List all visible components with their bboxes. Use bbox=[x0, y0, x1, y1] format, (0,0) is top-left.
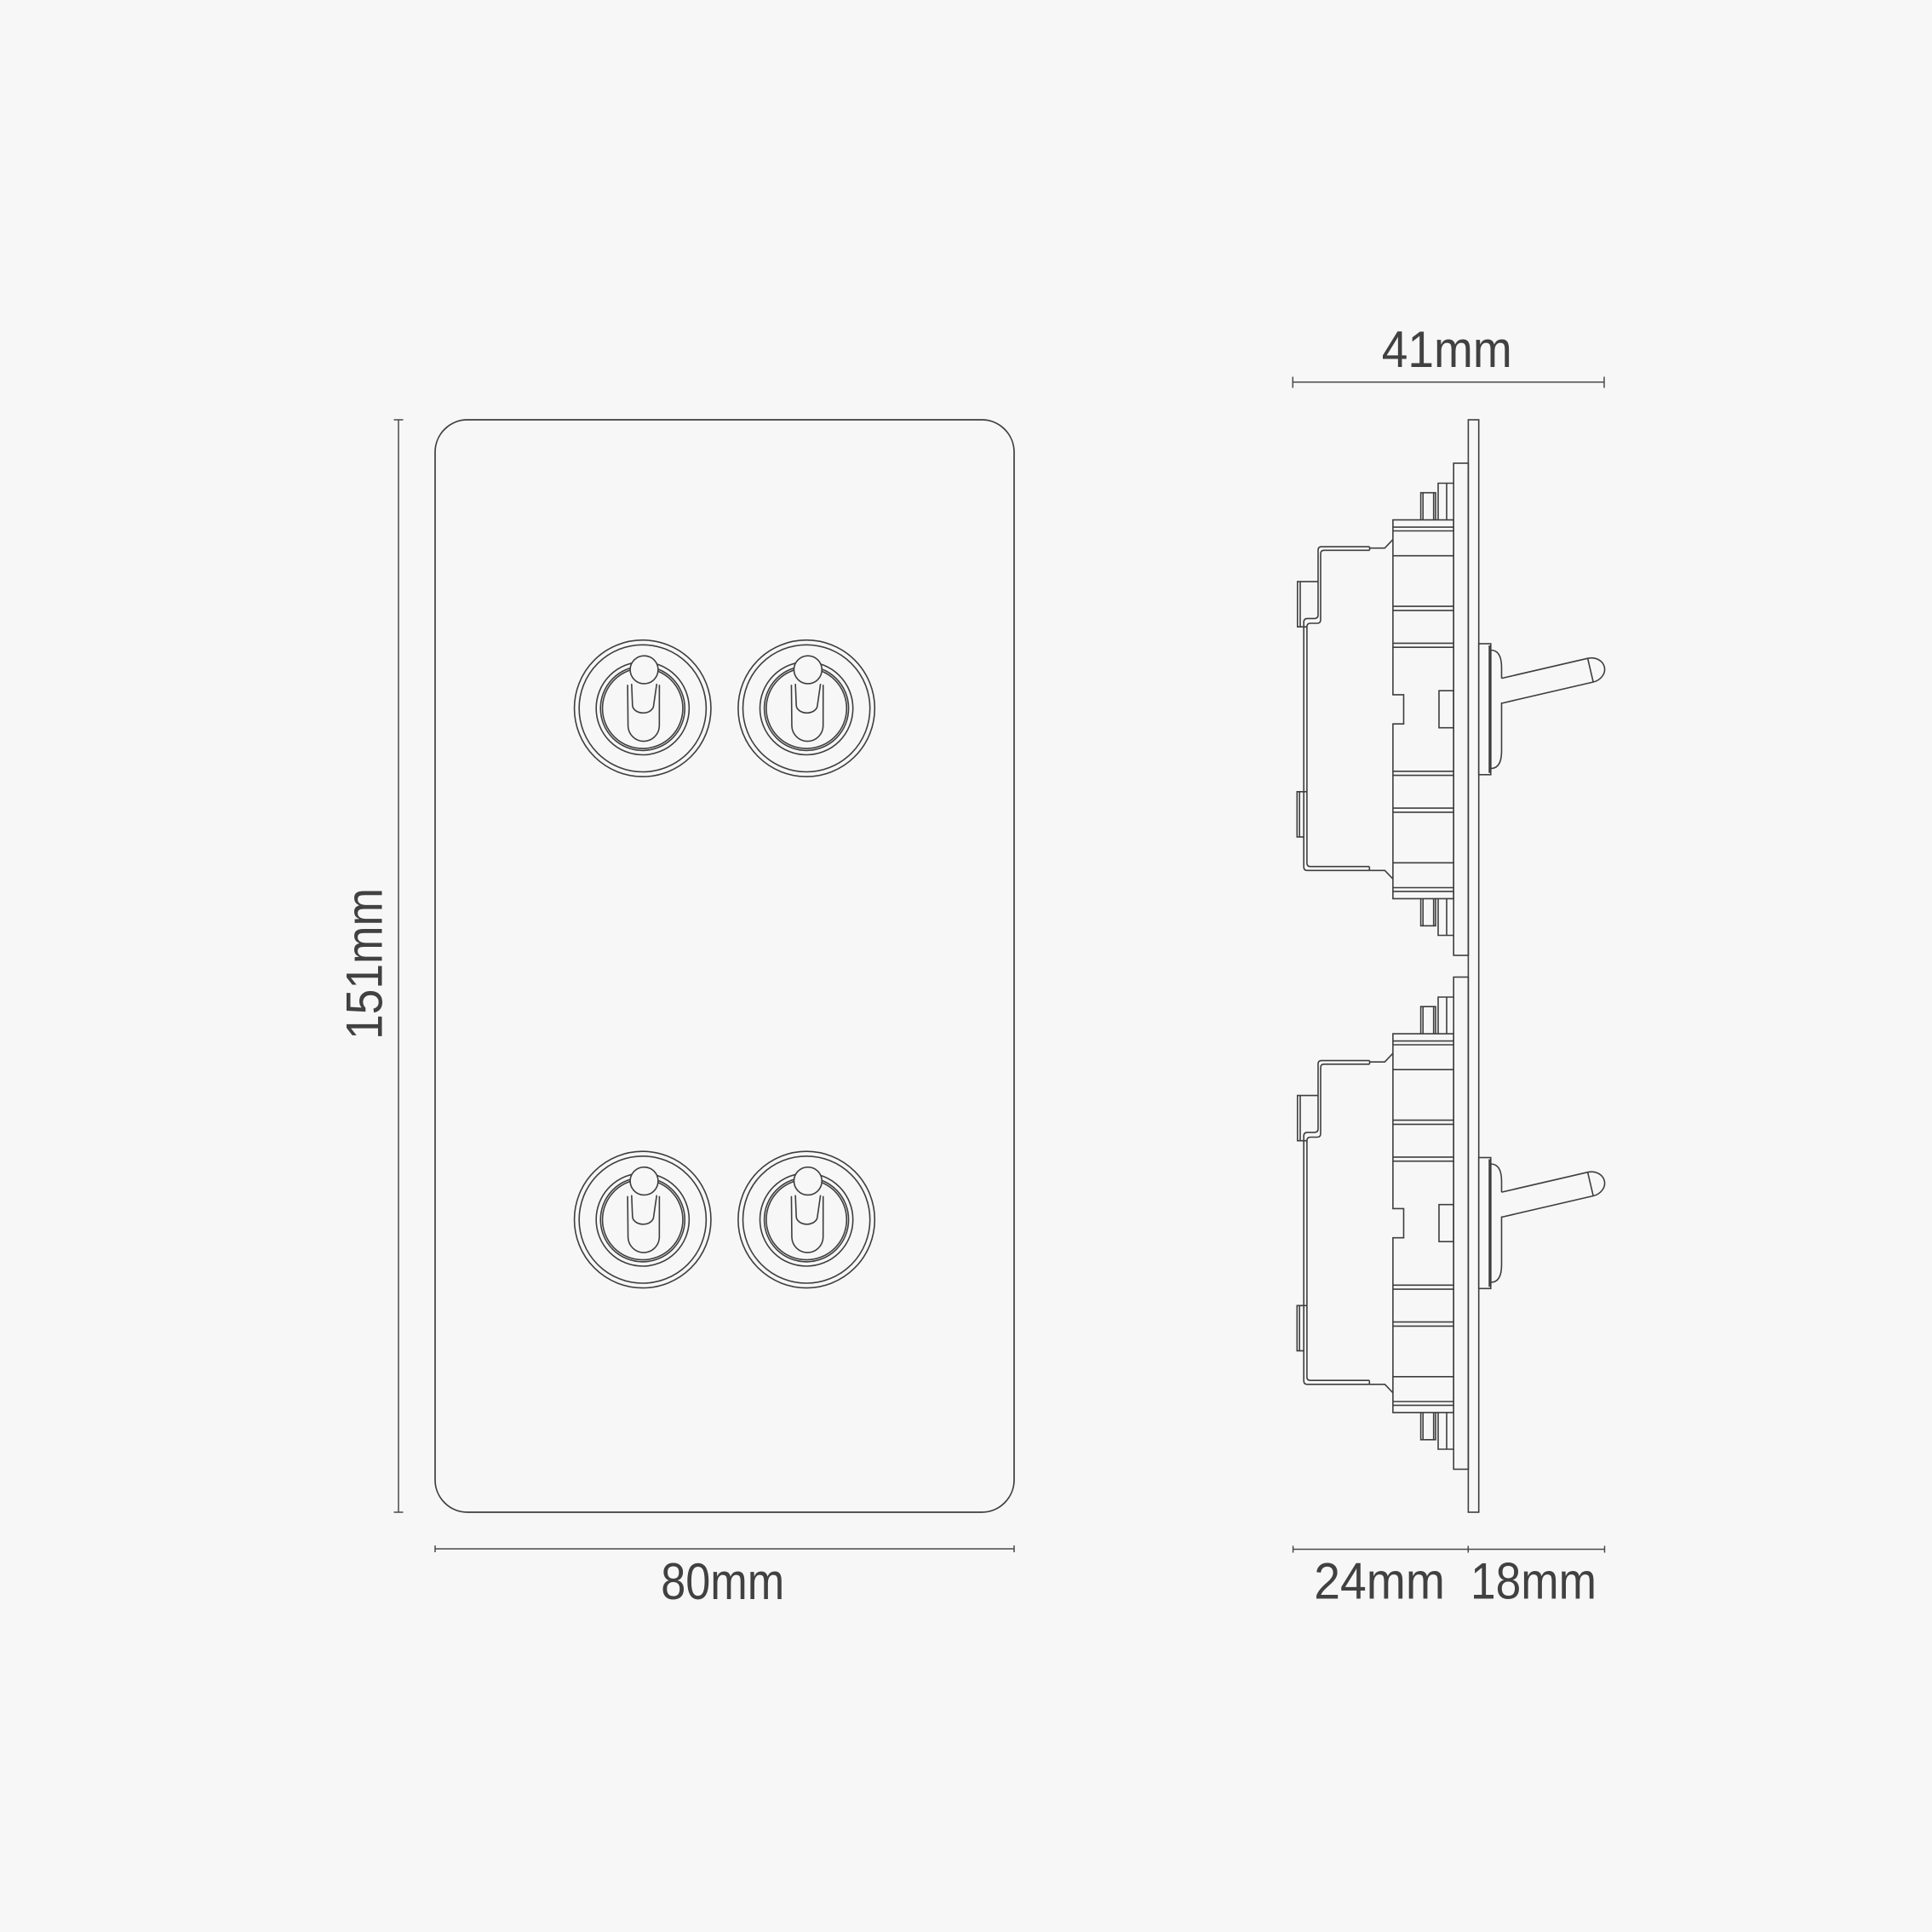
svg-text:24mm: 24mm bbox=[1314, 1553, 1445, 1610]
svg-text:18mm: 18mm bbox=[1470, 1553, 1597, 1610]
svg-text:41mm: 41mm bbox=[1382, 321, 1512, 378]
svg-text:80mm: 80mm bbox=[661, 1553, 784, 1610]
svg-text:151mm: 151mm bbox=[336, 888, 393, 1040]
